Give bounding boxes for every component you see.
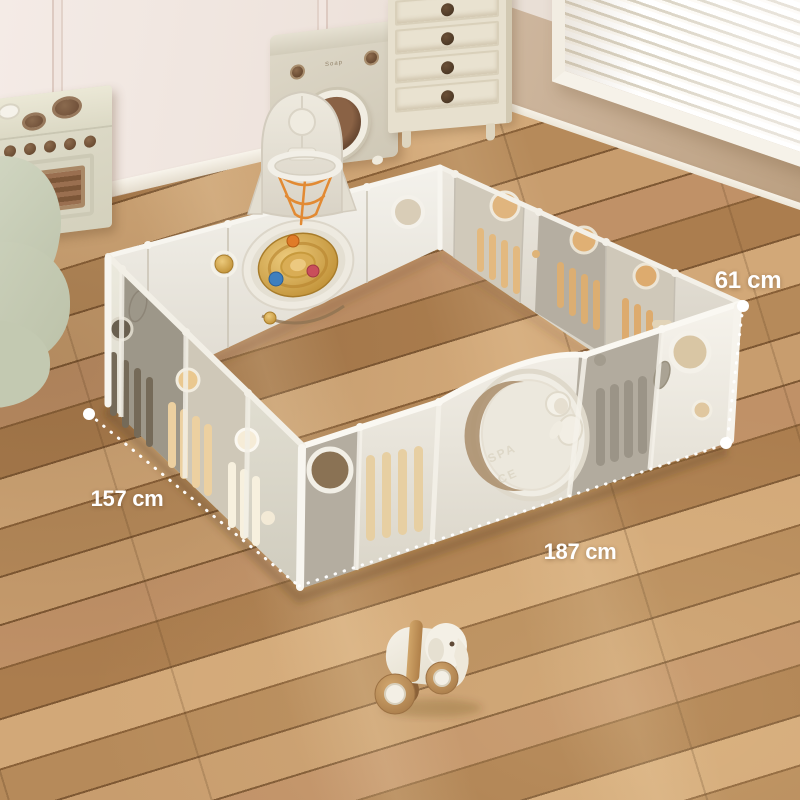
drawer <box>395 79 499 113</box>
washer-control-panel: Soap <box>282 46 386 93</box>
dimension-label-depth: 157 cm <box>91 488 164 510</box>
toy-pot <box>0 102 20 121</box>
product-scene: Soap <box>0 0 800 800</box>
toy-washing-machine: Soap <box>270 20 398 172</box>
burner-knob <box>22 111 46 132</box>
dimension-label-height: 61 cm <box>715 269 782 293</box>
dimension-label-width: 187 cm <box>544 541 617 563</box>
drawer-knob <box>441 60 454 74</box>
drawer <box>395 21 499 55</box>
drawer-knob <box>441 2 454 16</box>
dresser <box>388 0 512 133</box>
drawer-knob <box>441 89 454 103</box>
armchair <box>0 150 128 412</box>
drawer-knob <box>441 31 454 45</box>
washer-door <box>298 86 368 165</box>
burner-knob <box>52 95 82 121</box>
drawer <box>395 50 499 84</box>
